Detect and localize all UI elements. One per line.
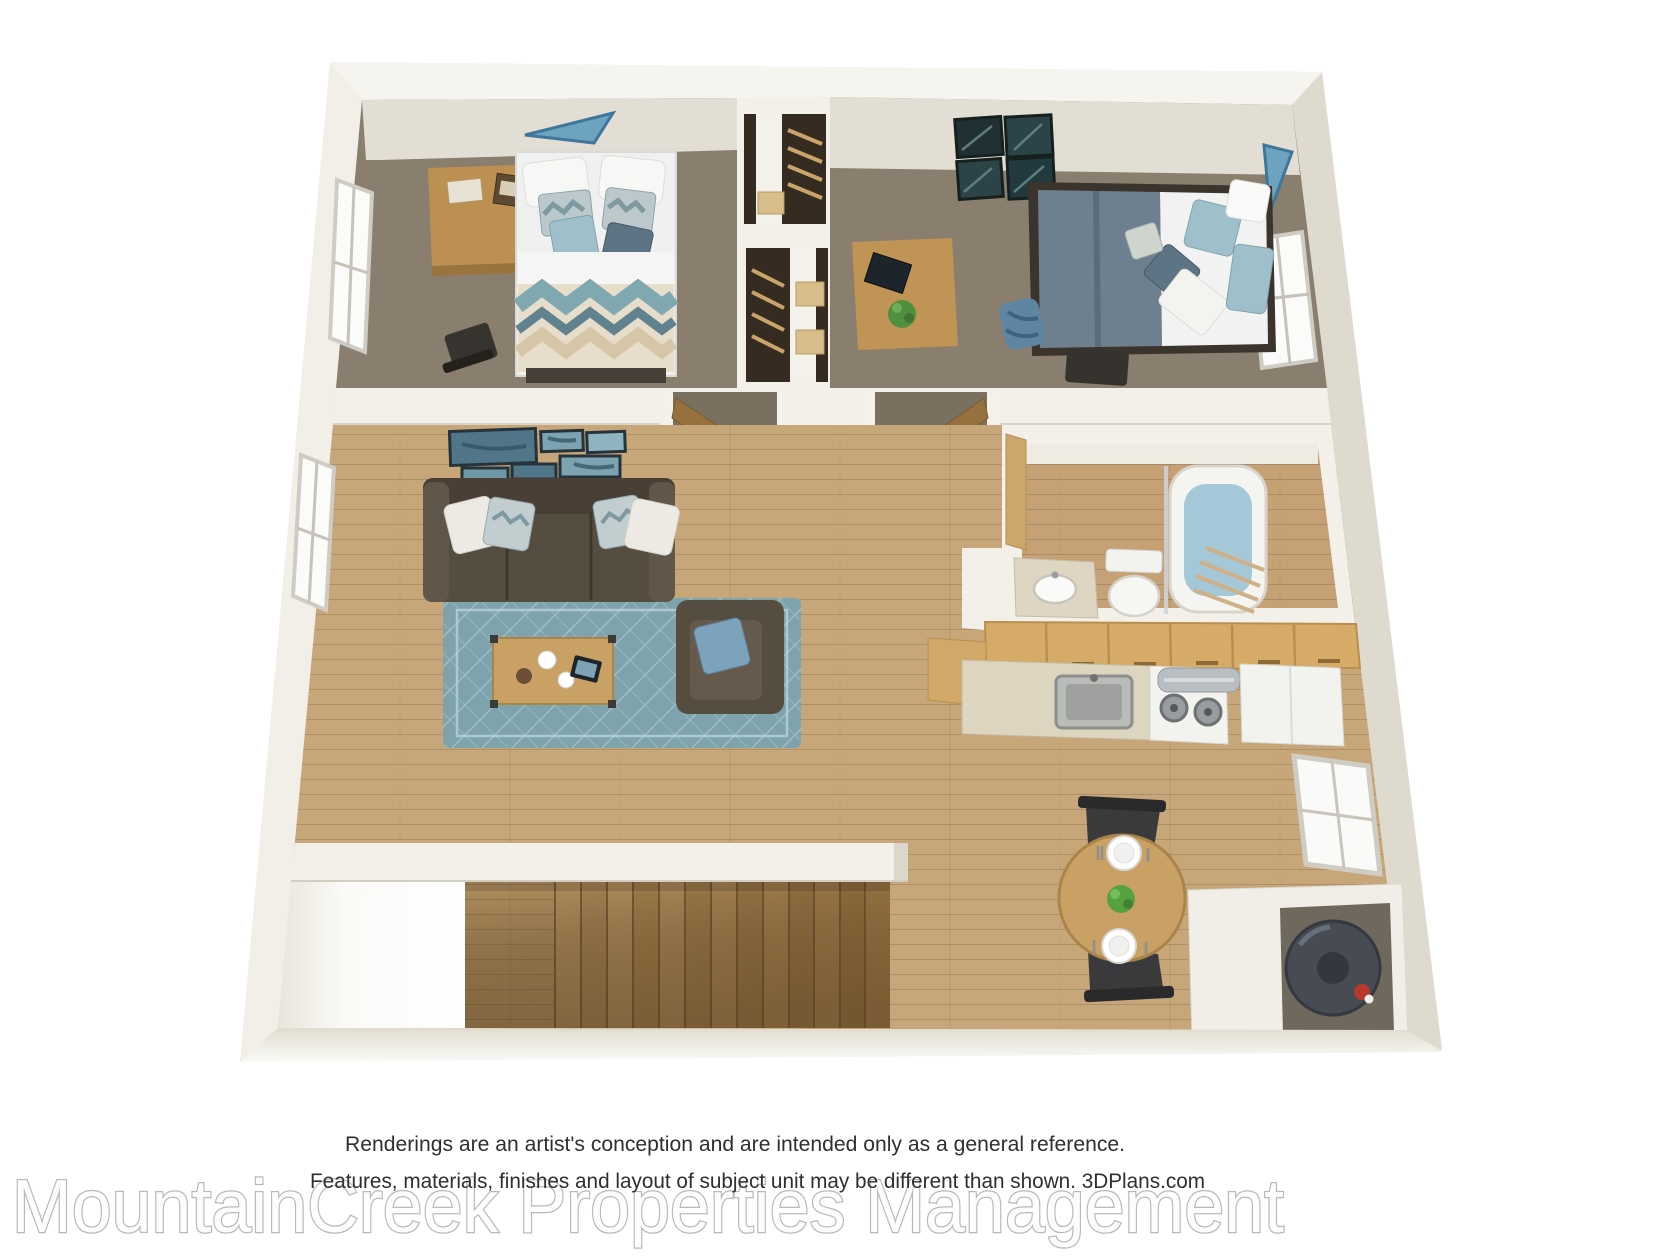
- bathtub: [1166, 466, 1266, 614]
- bedroom-1-bed: [516, 152, 676, 383]
- stair-treads: [465, 880, 890, 1028]
- stove: [1150, 666, 1240, 744]
- bottom-wall-face: [240, 1028, 1442, 1062]
- closet-lower: [746, 248, 828, 382]
- vanity-sink: [1014, 558, 1098, 618]
- staircase: [278, 843, 908, 1028]
- disclaimer-line-1: Renderings are an artist's conception an…: [345, 1133, 1125, 1156]
- bedroom-1: [330, 98, 737, 388]
- hall-wall-stub: [962, 548, 1006, 632]
- kitchen-counter: [962, 660, 1150, 740]
- bedroom-2-bed: [1028, 179, 1276, 356]
- stair-wall-band: [291, 843, 908, 882]
- armchair: [676, 600, 784, 714]
- sofa: [423, 478, 681, 602]
- bathroom-door: [1006, 434, 1026, 550]
- closet-upper: [744, 114, 826, 224]
- bedroom-2: [830, 97, 1327, 388]
- refrigerator: [1240, 664, 1344, 746]
- hall-closets: [737, 97, 830, 388]
- bedroom-2-desk: [852, 238, 958, 350]
- bedroom-2-chair: [1065, 348, 1129, 386]
- coffee-table: [490, 635, 616, 708]
- disclaimer-line-2: Features, materials, finishes and layout…: [310, 1170, 1205, 1193]
- floor-plan-rendering: MountainCreek Properties Management Rend…: [0, 0, 1680, 1260]
- water-heater: [1286, 921, 1380, 1015]
- water-heater-closet: [1188, 884, 1408, 1040]
- bathroom: [962, 425, 1356, 632]
- stairwell-void: [278, 880, 465, 1028]
- bedroom-2-wall-shade: [830, 97, 1300, 175]
- toilet: [1106, 549, 1163, 616]
- dining-table: [1059, 835, 1185, 963]
- floor-plan-page: MountainCreek Properties Management Rend…: [0, 0, 1680, 1260]
- kitchen: [928, 622, 1360, 746]
